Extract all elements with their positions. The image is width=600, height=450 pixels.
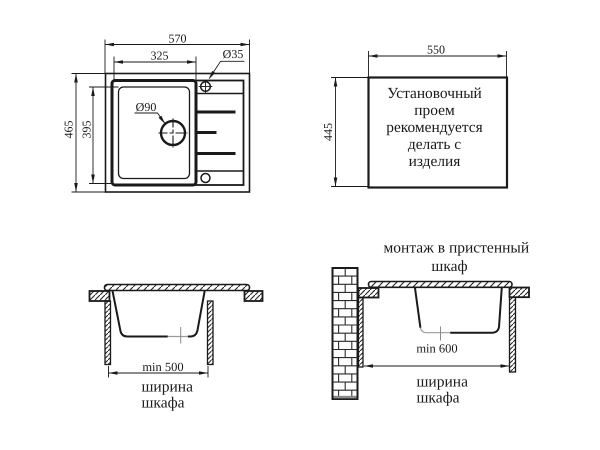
svg-text:шкаф: шкаф (431, 258, 467, 275)
svg-text:ширина: ширина (142, 379, 194, 396)
svg-text:изделия: изделия (409, 153, 461, 170)
svg-text:Ø35: Ø35 (223, 47, 244, 61)
svg-text:рекомендуется: рекомендуется (386, 119, 482, 136)
svg-text:445: 445 (321, 123, 335, 141)
svg-text:Установочный: Установочный (387, 85, 482, 102)
svg-text:550: 550 (427, 43, 445, 57)
svg-text:проем: проем (414, 102, 455, 119)
svg-text:делать с: делать с (408, 136, 461, 153)
svg-text:шкафа: шкафа (417, 390, 460, 407)
svg-text:min 600: min 600 (416, 341, 457, 355)
svg-text:ширина: ширина (417, 374, 469, 391)
svg-text:465: 465 (62, 121, 76, 139)
svg-text:570: 570 (169, 31, 187, 45)
svg-text:min 500: min 500 (142, 360, 183, 374)
svg-text:монтаж в пристенный: монтаж в пристенный (383, 239, 529, 256)
svg-text:шкафа: шкафа (142, 395, 185, 412)
svg-text:325: 325 (151, 49, 169, 63)
svg-text:Ø90: Ø90 (136, 100, 157, 114)
svg-text:395: 395 (80, 121, 94, 139)
